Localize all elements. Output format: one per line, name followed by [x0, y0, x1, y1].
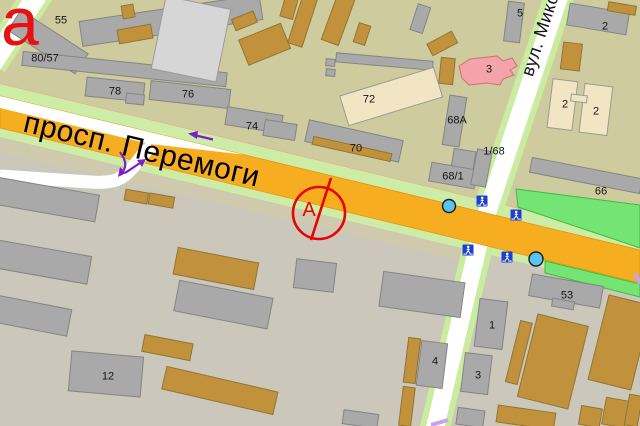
building-label-12: 12 [102, 372, 114, 383]
building-label-2-gray: 2 [602, 22, 608, 33]
building-label-5: 5 [517, 9, 523, 20]
building-label-55: 55 [55, 16, 67, 27]
building-label-80-57: 80/57 [31, 54, 59, 65]
building-label-72: 72 [363, 95, 375, 106]
building-label-3-north: 3 [486, 65, 492, 76]
building-light-large [151, 0, 230, 82]
corner-letter-label: а [1, 0, 39, 56]
transit-stop-icon [529, 252, 543, 266]
pedestrian-crossing-icon [502, 252, 513, 263]
building-label-68-1: 68/1 [442, 172, 463, 183]
building-label-70: 70 [350, 144, 362, 155]
building-label-53: 53 [561, 291, 573, 302]
building-label-1-south: 1 [489, 321, 495, 332]
building-label-66: 66 [595, 187, 607, 198]
map-viewport[interactable]: а просп. Перемоги вул. Микол А 55 80/57 … [0, 0, 640, 426]
building-label-78: 78 [109, 87, 121, 98]
building-label-3-south: 3 [475, 371, 481, 382]
building-label-1-68: 1/68 [483, 147, 504, 158]
pedestrian-crossing-icon [511, 210, 522, 221]
building-label-74: 74 [246, 122, 258, 133]
building-label-76: 76 [182, 90, 194, 101]
building-label-2-cream-left: 2 [562, 100, 568, 111]
building-label-2-cream-right: 2 [593, 107, 599, 118]
map-canvas [0, 0, 640, 426]
pedestrian-crossing-icon [477, 196, 488, 207]
building-label-68a: 68А [447, 116, 467, 127]
pedestrian-crossing-icon [463, 245, 474, 256]
marker-letter-label: А [302, 200, 315, 220]
transit-stop-icon [443, 200, 456, 213]
building-label-4-south: 4 [432, 357, 438, 368]
